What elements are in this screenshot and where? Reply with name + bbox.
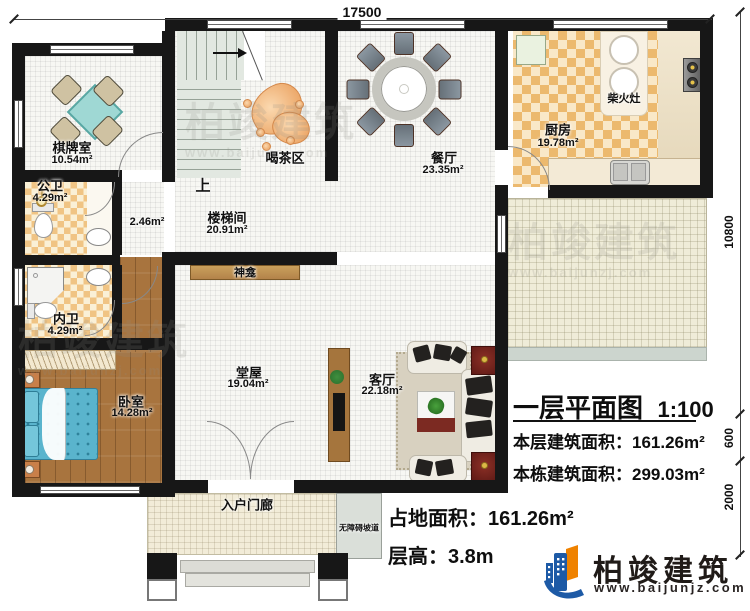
floor-plan-canvas: 柏竣建筑 www.baijunzj.com 柏竣建筑 www.baijunzj.… [0, 0, 750, 611]
room-area-stairwell: 20.91m² [207, 224, 248, 236]
sofa-cushion [465, 397, 493, 417]
porch-step-2 [185, 573, 310, 587]
room-area-private-bath: 4.29m² [48, 325, 83, 337]
dimension-right-value-1: 10800 [722, 210, 736, 253]
bed-pillow [24, 425, 39, 457]
bed-blanket-fold [42, 388, 66, 460]
land-area-label: 占地面积： [388, 508, 488, 530]
dining-table-center [399, 84, 409, 94]
window-top-stair [207, 20, 292, 29]
coffee-table-runner [417, 418, 455, 432]
stair-break-wedge [244, 31, 265, 80]
watermark: 柏竣建筑 www.baijunzj.com [508, 220, 680, 281]
land-area-value: 161.26m² [488, 508, 574, 530]
gas-burner-icon [687, 77, 698, 88]
porch-column-base-left [147, 579, 177, 601]
watermark-url: www.baijunzj.com [508, 266, 680, 281]
fridge [516, 35, 546, 65]
kitchen-sink-basin [631, 163, 646, 181]
sofa-cushion [415, 459, 434, 477]
room-area-hall: 19.04m² [228, 378, 269, 390]
watermark: 柏竣建筑 www.baijunzj.com [18, 318, 190, 379]
side-table-lamp-icon [481, 356, 488, 363]
total-area-row: 本栋建筑面积：299.03m² [513, 460, 705, 485]
bathroom-sink [86, 228, 111, 246]
label-shrine: 神龛 [234, 264, 256, 280]
tv-plant-icon [330, 370, 344, 384]
window-top-kitchen [553, 20, 668, 29]
label-accessible-ramp: 无障碍坡道 [339, 523, 379, 534]
wall-bath-top [12, 170, 122, 182]
gas-burner-icon [687, 62, 698, 73]
shower-drain-icon [33, 273, 38, 278]
stair-up-label: 上 [195, 175, 210, 196]
bathroom-sink [86, 268, 111, 286]
height-label: 层高： [388, 546, 448, 568]
wall-dining-kitchen [495, 31, 508, 150]
dining-chair [347, 80, 370, 100]
floor-area-label: 本层建筑面积： [513, 433, 632, 452]
dimension-line-right [740, 12, 741, 557]
toilet-bowl [34, 213, 53, 238]
window-patio-wall [497, 215, 506, 253]
wall-bottom-right-of-door [294, 480, 508, 493]
room-area-living: 22.18m² [362, 385, 403, 397]
dimension-right-value-3: 2000 [722, 479, 736, 516]
wall-stair-left [162, 31, 175, 182]
wall-kitchen-right [700, 31, 713, 198]
porch-column-right [318, 553, 348, 579]
kitchen-sink-basin [613, 163, 628, 181]
window-bath-left [14, 268, 23, 306]
room-area-game: 10.54m² [52, 154, 93, 166]
plan-title: 一层平面图 [513, 393, 643, 423]
porch-column-left [147, 553, 177, 579]
watermark-name: 柏竣建筑 [508, 220, 680, 266]
room-label-porch: 入户门廊 [221, 495, 273, 514]
brand-url: www.baijunjz.com [594, 580, 746, 595]
porch-column-base-right [318, 579, 348, 601]
window-bedroom-bottom [40, 486, 140, 494]
sofa-cushion [465, 420, 493, 439]
window-gameroom-top [50, 45, 134, 54]
total-area-value: 299.03m² [632, 465, 705, 484]
plan-scale: 1:100 [657, 397, 713, 422]
window-gameroom-left [14, 100, 23, 148]
stair-direction-line [213, 52, 239, 54]
tv-screen [333, 393, 345, 431]
watermark-url: www.baijunzj.com [18, 364, 190, 379]
room-label-kitchen: 厨房 [545, 120, 571, 139]
sofa-cushion [465, 375, 493, 395]
watermark-name: 柏竣建筑 [185, 100, 357, 146]
dining-chair [394, 124, 414, 147]
label-firewood-stove: 柴火灶 [608, 90, 641, 106]
wall-bath-mid [12, 255, 120, 265]
room-area-dining: 23.35m² [423, 164, 464, 176]
sofa-cushion [435, 459, 454, 477]
floor-area-row: 本层建筑面积：161.26m² [513, 428, 705, 453]
firewood-stove-burner [609, 35, 639, 65]
dining-chair [394, 32, 414, 55]
wall-bottom-left-of-door [162, 480, 208, 493]
dimension-right-value-2: 600 [722, 423, 736, 453]
plan-title-underline [513, 420, 696, 422]
bed-pillow [24, 391, 39, 423]
patio-edge-band [507, 347, 707, 361]
total-area-label: 本栋建筑面积： [513, 465, 632, 484]
floor-area-value: 161.26m² [632, 433, 705, 452]
room-area-public-bath: 4.29m² [33, 192, 68, 204]
stair-direction-arrow-icon [238, 48, 247, 58]
wall-kitchen-bottom [548, 185, 713, 198]
sofa-cushion [433, 344, 452, 362]
brand-logo-icon [540, 543, 588, 603]
window-top-dining [360, 20, 465, 29]
dimension-top-value: 17500 [338, 4, 387, 20]
height-row: 层高：3.8m [388, 540, 494, 569]
height-value: 3.8m [448, 546, 494, 568]
room-area-corridor: 2.46m² [130, 216, 165, 228]
side-table-lamp-icon [481, 462, 488, 469]
room-area-kitchen: 19.78m² [538, 137, 579, 149]
land-area-row: 占地面积：161.26m² [388, 502, 574, 531]
porch-step-1 [180, 560, 315, 573]
nightstand-lamp-icon [25, 465, 34, 474]
dining-chair [439, 80, 462, 100]
brand-logo: 柏竣建筑 www.baijunjz.com [540, 543, 740, 605]
room-area-bedroom: 14.28m² [112, 407, 153, 419]
watermark-name: 柏竣建筑 [18, 318, 190, 364]
room-label-tea: 喝茶区 [265, 148, 304, 167]
